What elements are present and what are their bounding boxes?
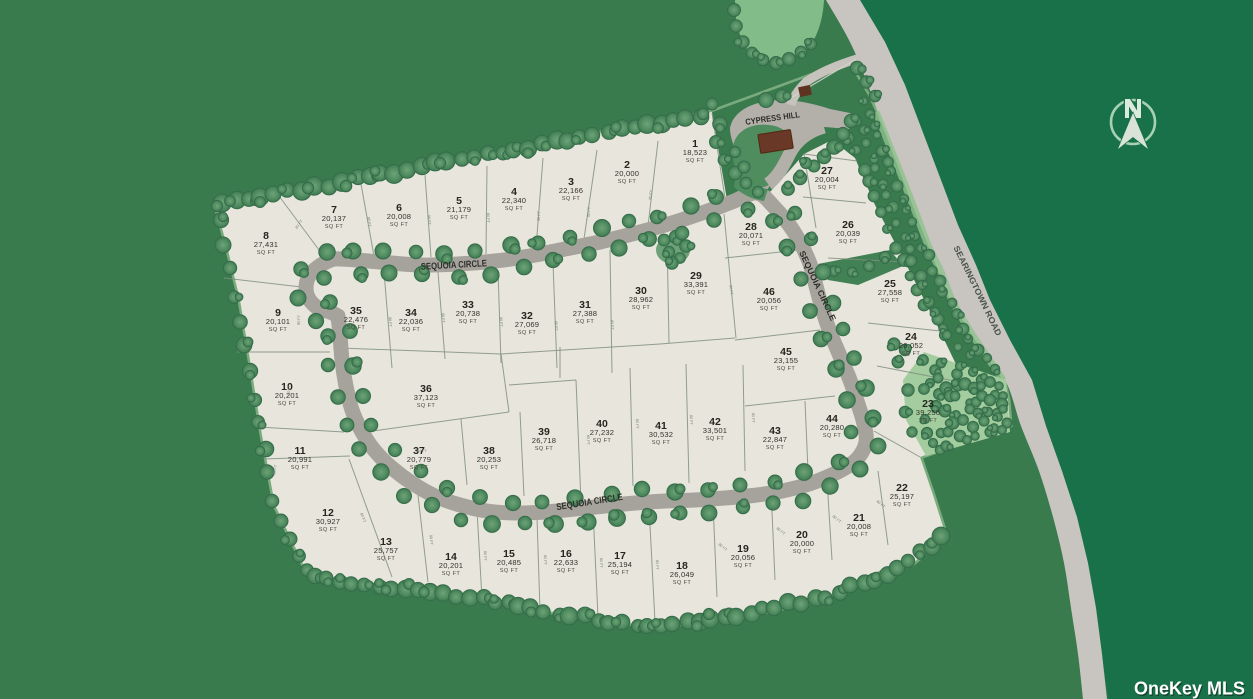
svg-text:20,201: 20,201 [439,561,463,570]
svg-text:SQ FT: SQ FT [347,325,366,331]
svg-text:33,391: 33,391 [684,280,708,289]
svg-text:20,991: 20,991 [288,455,312,464]
svg-text:80 FT: 80 FT [689,415,693,426]
svg-text:SQ FT: SQ FT [818,185,837,191]
svg-text:SQ FT: SQ FT [618,179,637,185]
svg-text:22,036: 22,036 [399,317,423,326]
svg-text:OneKey MLS: OneKey MLS [1134,679,1245,699]
svg-text:27,431: 27,431 [254,240,278,249]
svg-text:80 FT: 80 FT [751,413,755,424]
svg-text:22,476: 22,476 [344,315,368,324]
svg-text:20,008: 20,008 [847,522,871,531]
svg-text:22,633: 22,633 [554,558,578,567]
svg-text:SQ FT: SQ FT [257,250,276,256]
svg-text:20,485: 20,485 [497,558,521,567]
svg-text:SQ FT: SQ FT [442,571,461,577]
svg-text:80 FT: 80 FT [655,560,659,571]
svg-text:20,056: 20,056 [731,553,755,562]
svg-text:27,069: 27,069 [515,320,539,329]
svg-text:SQ FT: SQ FT [706,436,725,442]
svg-text:20,039: 20,039 [836,229,860,238]
svg-text:SQ FT: SQ FT [919,418,938,424]
svg-text:SQ FT: SQ FT [518,330,537,336]
svg-text:80 FT: 80 FT [483,551,487,562]
svg-text:SQ FT: SQ FT [734,563,753,569]
svg-text:20,738: 20,738 [456,309,480,318]
svg-text:SQ FT: SQ FT [673,580,692,586]
svg-text:20,000: 20,000 [615,169,639,178]
svg-text:20,101: 20,101 [266,317,290,326]
svg-text:SQ FT: SQ FT [777,366,796,372]
svg-text:23,155: 23,155 [774,356,798,365]
svg-text:SQ FT: SQ FT [500,568,519,574]
svg-text:SQ FT: SQ FT [687,290,706,296]
svg-text:20,008: 20,008 [387,212,411,221]
svg-text:80 FT: 80 FT [417,449,428,453]
svg-text:27,558: 27,558 [878,288,902,297]
svg-text:SQ FT: SQ FT [742,241,761,247]
svg-text:20,137: 20,137 [322,214,346,223]
svg-text:80 FT: 80 FT [537,210,542,221]
svg-text:SQ FT: SQ FT [557,568,576,574]
svg-text:26,052: 26,052 [899,341,923,350]
svg-text:22,847: 22,847 [763,435,787,444]
svg-text:SQ FT: SQ FT [632,305,651,311]
svg-text:SQ FT: SQ FT [459,319,478,325]
svg-text:20,056: 20,056 [757,296,781,305]
svg-text:30,927: 30,927 [316,517,340,526]
svg-text:27,232: 27,232 [590,428,614,437]
svg-text:SQ FT: SQ FT [325,224,344,230]
svg-text:25,194: 25,194 [608,560,632,569]
svg-text:26,049: 26,049 [670,570,694,579]
svg-text:26,718: 26,718 [532,436,556,445]
svg-text:20,071: 20,071 [739,231,763,240]
svg-text:SQ FT: SQ FT [766,445,785,451]
svg-text:80 FT: 80 FT [635,419,639,430]
svg-text:SQ FT: SQ FT [410,465,429,471]
svg-text:SQ FT: SQ FT [278,401,297,407]
svg-text:SQ FT: SQ FT [390,222,409,228]
svg-text:80 FT: 80 FT [599,558,603,569]
svg-text:80 FT: 80 FT [499,317,504,328]
svg-text:20,004: 20,004 [815,175,839,184]
svg-text:SQ FT: SQ FT [893,502,912,508]
svg-text:22,340: 22,340 [502,196,526,205]
svg-text:SQ FT: SQ FT [902,351,921,357]
svg-text:20,280: 20,280 [820,423,844,432]
svg-text:SQ FT: SQ FT [319,527,338,533]
svg-text:22,166: 22,166 [559,186,583,195]
svg-text:80 FT: 80 FT [486,213,490,224]
svg-text:SQ FT: SQ FT [576,319,595,325]
svg-text:SQ FT: SQ FT [291,465,310,471]
svg-text:SQ FT: SQ FT [505,206,524,212]
svg-text:27,388: 27,388 [573,309,597,318]
svg-text:SQ FT: SQ FT [611,570,630,576]
svg-text:20,253: 20,253 [477,455,501,464]
svg-text:SQ FT: SQ FT [823,433,842,439]
svg-text:80 FT: 80 FT [554,321,559,332]
svg-text:20,000: 20,000 [790,539,814,548]
svg-text:SQ FT: SQ FT [535,446,554,452]
svg-text:39,256: 39,256 [916,408,940,417]
svg-text:28,962: 28,962 [629,295,653,304]
svg-text:18,523: 18,523 [683,148,707,157]
svg-text:25,757: 25,757 [374,546,398,555]
svg-text:25,197: 25,197 [890,492,914,501]
svg-text:33,501: 33,501 [703,426,727,435]
svg-text:SQ FT: SQ FT [686,158,705,164]
svg-text:80 FT: 80 FT [586,435,590,446]
svg-text:21,179: 21,179 [447,205,471,214]
svg-text:SQ FT: SQ FT [377,556,396,562]
svg-text:80 FT: 80 FT [543,555,547,566]
svg-text:SQ FT: SQ FT [881,298,900,304]
svg-text:SQ FT: SQ FT [760,306,779,312]
svg-text:SQ FT: SQ FT [402,327,421,333]
svg-text:SQ FT: SQ FT [417,403,436,409]
svg-text:80 FT: 80 FT [610,320,615,331]
svg-text:SQ FT: SQ FT [562,196,581,202]
svg-text:30,532: 30,532 [649,430,673,439]
svg-text:SQ FT: SQ FT [652,440,671,446]
svg-text:SQ FT: SQ FT [793,549,812,555]
svg-text:20,779: 20,779 [407,455,431,464]
svg-text:SQ FT: SQ FT [593,438,612,444]
svg-text:SQ FT: SQ FT [839,239,858,245]
svg-text:SQ FT: SQ FT [480,465,499,471]
svg-text:SQ FT: SQ FT [269,327,288,333]
svg-text:SQ FT: SQ FT [850,532,869,538]
svg-text:37,123: 37,123 [414,393,438,402]
svg-text:SQ FT: SQ FT [450,215,469,221]
